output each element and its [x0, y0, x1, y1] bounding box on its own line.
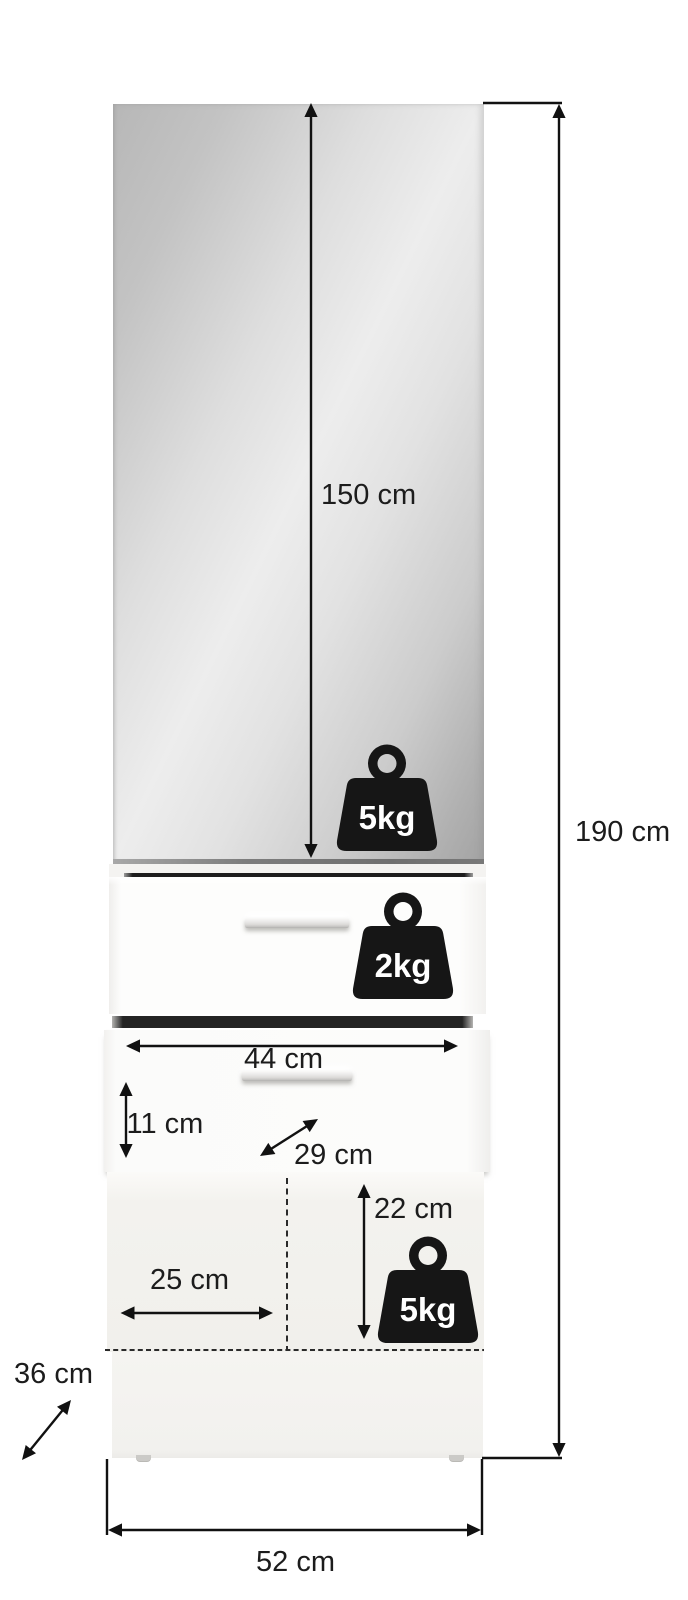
- svg-text:36 cm: 36 cm: [14, 1358, 93, 1390]
- svg-text:25 cm: 25 cm: [150, 1264, 229, 1296]
- svg-text:52 cm: 52 cm: [256, 1546, 335, 1578]
- svg-text:150 cm: 150 cm: [321, 479, 416, 511]
- svg-text:29 cm: 29 cm: [294, 1139, 373, 1171]
- svg-text:2kg: 2kg: [375, 947, 432, 984]
- svg-text:11 cm: 11 cm: [127, 1108, 204, 1140]
- svg-text:190 cm: 190 cm: [575, 816, 670, 848]
- svg-text:22 cm: 22 cm: [374, 1193, 453, 1225]
- svg-text:5kg: 5kg: [400, 1291, 457, 1328]
- svg-text:5kg: 5kg: [359, 799, 416, 836]
- svg-text:44 cm: 44 cm: [244, 1043, 323, 1075]
